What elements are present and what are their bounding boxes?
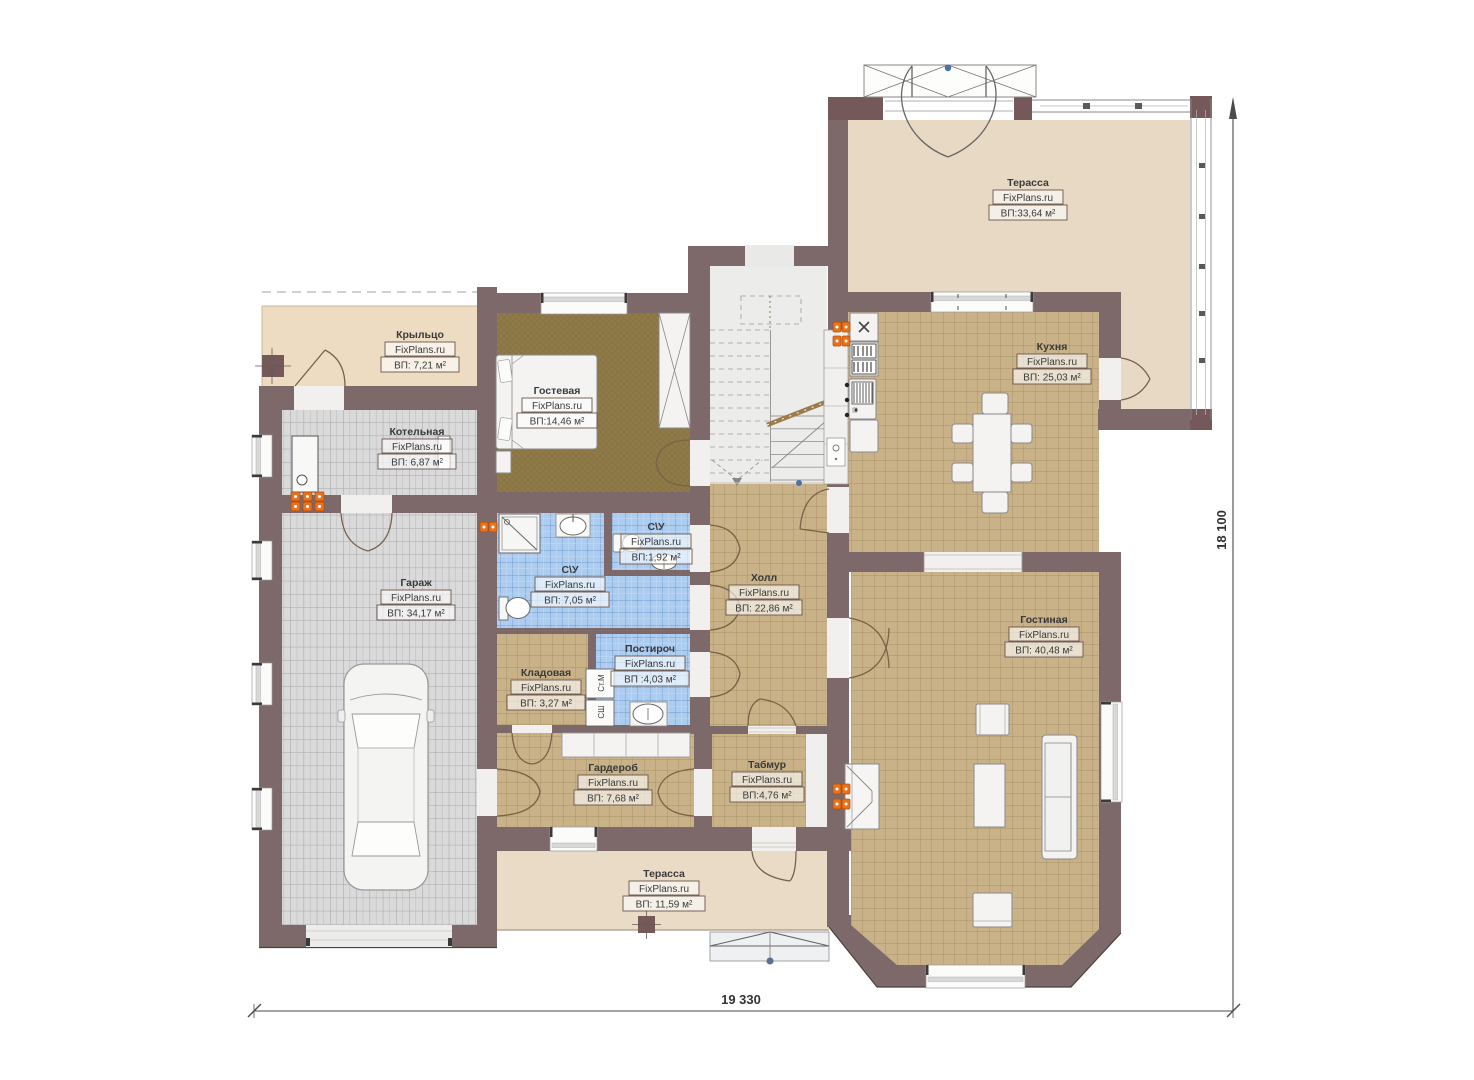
svg-text:ВП: 7,05 м²: ВП: 7,05 м² xyxy=(544,596,597,607)
svg-text:ВП: 25,03 м²: ВП: 25,03 м² xyxy=(1023,373,1081,384)
svg-text:19 330: 19 330 xyxy=(721,992,761,1007)
svg-text:ВП: 6,87 м²: ВП: 6,87 м² xyxy=(391,458,444,469)
svg-text:FixPlans.ru: FixPlans.ru xyxy=(395,345,445,356)
svg-text:FixPlans.ru: FixPlans.ru xyxy=(739,588,789,599)
svg-text:Терасса: Терасса xyxy=(1007,177,1049,189)
svg-text:С\У: С\У xyxy=(561,564,579,576)
svg-text:Гостевая: Гостевая xyxy=(534,385,581,397)
svg-text:Постироч: Постироч xyxy=(625,643,675,655)
svg-text:Кухня: Кухня xyxy=(1037,341,1068,353)
svg-text:Котельная: Котельная xyxy=(390,426,445,438)
svg-text:FixPlans.ru: FixPlans.ru xyxy=(532,401,582,412)
svg-text:Терасса: Терасса xyxy=(643,868,685,880)
svg-text:FixPlans.ru: FixPlans.ru xyxy=(625,659,675,670)
svg-text:Крыльцо: Крыльцо xyxy=(396,329,444,341)
svg-text:FixPlans.ru: FixPlans.ru xyxy=(1019,630,1069,641)
svg-text:Кладовая: Кладовая xyxy=(521,667,571,679)
svg-text:ВП:14,46 м²: ВП:14,46 м² xyxy=(530,417,585,428)
svg-text:FixPlans.ru: FixPlans.ru xyxy=(521,683,571,694)
svg-text:Табмур: Табмур xyxy=(748,759,786,771)
svg-text:ВП: 7,21 м²: ВП: 7,21 м² xyxy=(394,361,447,372)
svg-text:С\У: С\У xyxy=(647,521,665,533)
svg-text:ВП :4,03 м²: ВП :4,03 м² xyxy=(624,675,677,686)
svg-text:Ст.М: Ст.М xyxy=(597,674,606,692)
svg-text:FixPlans.ru: FixPlans.ru xyxy=(391,593,441,604)
svg-text:ВП: 22,86 м²: ВП: 22,86 м² xyxy=(735,604,793,615)
svg-text:Гостиная: Гостиная xyxy=(1020,614,1067,626)
svg-text:Гараж: Гараж xyxy=(400,577,432,589)
svg-text:ВП: 3,27 м²: ВП: 3,27 м² xyxy=(520,699,573,710)
svg-text:ВП:4,76 м²: ВП:4,76 м² xyxy=(742,791,792,802)
svg-text:ВП:33,64 м²: ВП:33,64 м² xyxy=(1001,209,1056,220)
svg-text:Гардероб: Гардероб xyxy=(588,762,638,774)
svg-text:ВП: 7,68 м²: ВП: 7,68 м² xyxy=(587,794,640,805)
svg-text:FixPlans.ru: FixPlans.ru xyxy=(392,442,442,453)
svg-text:FixPlans.ru: FixPlans.ru xyxy=(545,580,595,591)
svg-text:СШ: СШ xyxy=(597,705,606,718)
svg-text:ВП: 34,17 м²: ВП: 34,17 м² xyxy=(387,609,445,620)
svg-text:FixPlans.ru: FixPlans.ru xyxy=(631,537,681,548)
svg-text:ВП:1,92 м²: ВП:1,92 м² xyxy=(631,553,681,564)
svg-text:ВП: 11,59 м²: ВП: 11,59 м² xyxy=(636,900,693,911)
svg-text:FixPlans.ru: FixPlans.ru xyxy=(1027,357,1077,368)
svg-text:18 100: 18 100 xyxy=(1214,510,1229,550)
svg-text:ВП: 40,48 м²: ВП: 40,48 м² xyxy=(1015,646,1073,657)
svg-text:FixPlans.ru: FixPlans.ru xyxy=(588,778,638,789)
svg-text:FixPlans.ru: FixPlans.ru xyxy=(639,884,689,895)
svg-text:Холл: Холл xyxy=(751,572,777,584)
svg-text:FixPlans.ru: FixPlans.ru xyxy=(1003,193,1053,204)
svg-text:FixPlans.ru: FixPlans.ru xyxy=(742,775,792,786)
